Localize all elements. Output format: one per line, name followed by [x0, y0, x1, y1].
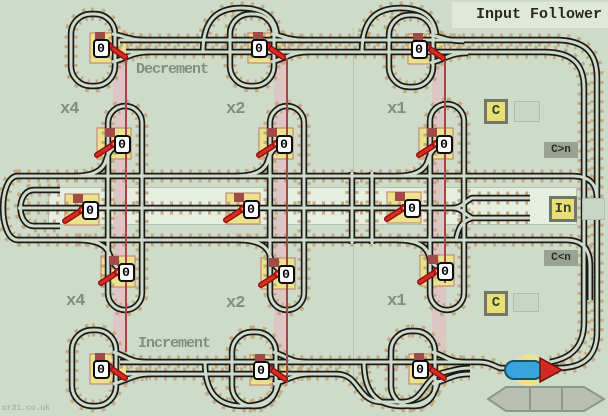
link-square: [109, 256, 119, 265]
counter-display[interactable]: 0: [243, 200, 260, 219]
train-body[interactable]: [505, 361, 543, 379]
counter-display[interactable]: 0: [93, 39, 110, 58]
train-direction-arrow-icon: [540, 358, 562, 382]
counter-display[interactable]: 0: [412, 360, 429, 379]
register-c-top-box[interactable]: C: [484, 99, 508, 124]
counter-display[interactable]: 0: [436, 135, 453, 154]
counter-display[interactable]: 0: [411, 40, 428, 59]
branch-label-c-less: C<n: [544, 250, 578, 266]
register-c-top-slot[interactable]: [514, 101, 540, 122]
link-square: [428, 255, 438, 264]
link-squares: [73, 32, 438, 363]
register-c-bottom-slot[interactable]: [513, 293, 539, 312]
link-square: [395, 192, 405, 201]
train[interactable]: [505, 354, 562, 386]
link-square: [269, 258, 279, 267]
register-c-bottom-box[interactable]: C: [484, 291, 508, 316]
counter-display[interactable]: 0: [251, 39, 268, 58]
link-square: [234, 193, 244, 202]
counter-display[interactable]: 0: [93, 360, 110, 379]
boat-platform: [488, 387, 604, 411]
link-square: [73, 194, 83, 203]
link-lines: [126, 58, 445, 383]
counter-display[interactable]: 0: [114, 135, 131, 154]
link-square: [105, 128, 115, 137]
input-slot[interactable]: [582, 198, 605, 220]
counter-display[interactable]: 0: [437, 262, 454, 281]
counter-display[interactable]: 0: [118, 263, 135, 282]
counter-display[interactable]: 0: [276, 135, 293, 154]
input-box[interactable]: In: [549, 196, 577, 222]
counter-display[interactable]: 0: [82, 201, 99, 220]
counter-display[interactable]: 0: [253, 361, 270, 380]
link-square: [427, 128, 437, 137]
counter-display[interactable]: 0: [278, 265, 295, 284]
link-square: [267, 128, 277, 137]
counter-display[interactable]: 0: [404, 199, 421, 218]
input-follower-board: Input Follower Decrement Increment x4 x2…: [0, 0, 608, 416]
watermark: cr31.co.uk: [2, 404, 50, 413]
branch-label-c-greater: C>n: [544, 142, 578, 158]
